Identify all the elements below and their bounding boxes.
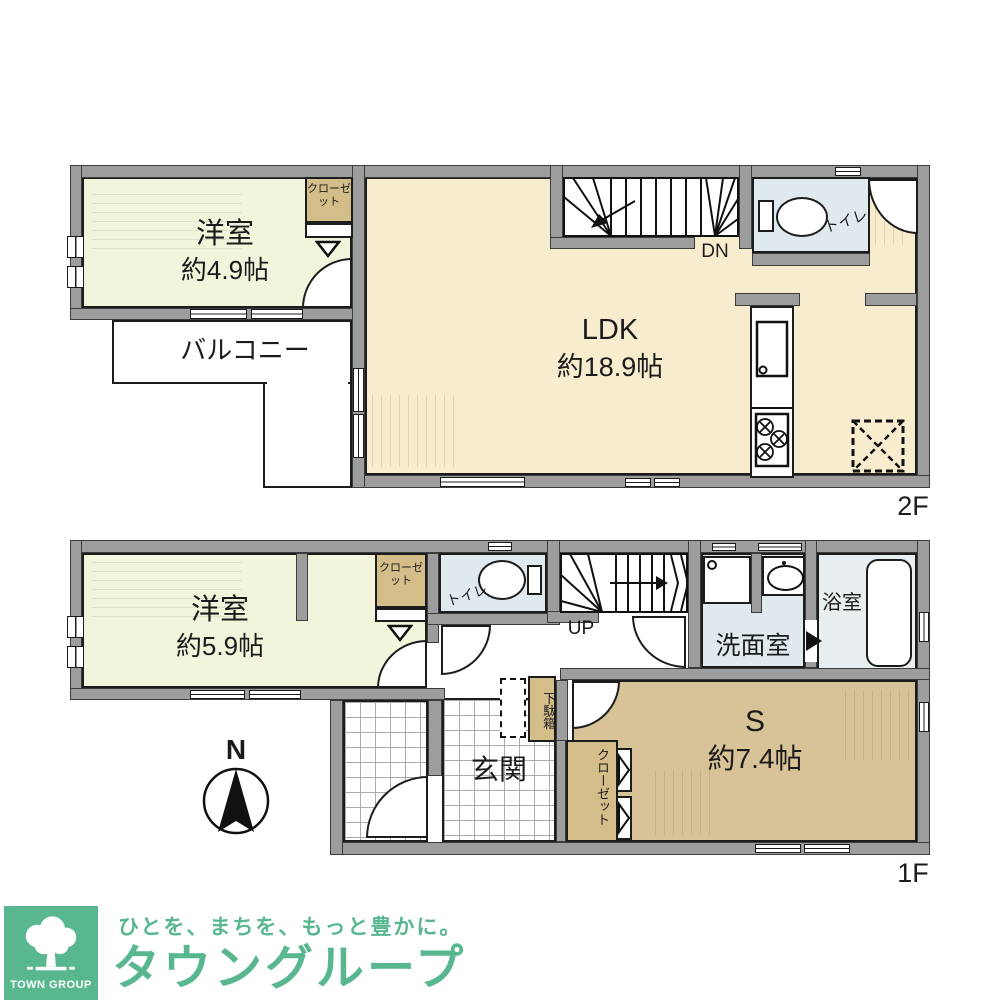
service-closet-label: クローゼット	[572, 748, 612, 804]
north-label: N	[210, 732, 262, 768]
toilet-door-1f	[441, 625, 491, 675]
window	[758, 543, 802, 551]
window	[712, 543, 736, 551]
washbasin-icon	[762, 556, 805, 596]
closet-label-1f: クローゼット	[378, 562, 424, 588]
closet-front	[375, 608, 427, 622]
washer-tap-icon	[707, 560, 717, 570]
shoe-cabinet-doors	[500, 678, 526, 738]
service-room-label: S 約7.4帖	[630, 702, 880, 777]
floor-1-plan: UP トイレ クローゼット 下駄箱	[0, 0, 1000, 1000]
staircase-up	[560, 553, 688, 613]
room-name: 洋室	[105, 592, 335, 630]
closet-bifold	[616, 796, 632, 840]
room-area: 約7.4帖	[630, 741, 880, 777]
floorplan-page: DN トイレ クローゼット	[0, 0, 1000, 1000]
bathtub-icon	[866, 559, 912, 667]
bath-door-mark	[806, 631, 822, 651]
room-area: 約5.9帖	[105, 630, 335, 664]
logo-caption: TOWN GROUP	[4, 978, 98, 992]
stairs-up-label: UP	[556, 617, 606, 642]
entrance-label: 玄関	[442, 752, 556, 788]
toilet-tank-icon	[527, 565, 542, 595]
room-name: S	[630, 702, 880, 741]
window	[488, 542, 512, 551]
tree-icon	[16, 912, 86, 974]
logo-square: TOWN GROUP	[4, 906, 98, 1000]
washroom-divider	[751, 553, 762, 613]
floor-1-label: 1F	[888, 856, 938, 891]
floor-hatch	[655, 770, 710, 835]
brand-company-name: タウングループ	[112, 938, 672, 1000]
bathroom-label: 浴室	[817, 590, 867, 616]
washroom-door	[632, 616, 686, 668]
bedroom-1f-label: 洋室 約5.9帖	[105, 592, 335, 663]
washroom-label: 洗面室	[698, 630, 808, 663]
north-arrow-icon	[201, 766, 271, 836]
window	[919, 612, 929, 642]
closet-door-mark	[387, 624, 413, 642]
shoe-cabinet: 下駄箱	[528, 676, 556, 742]
